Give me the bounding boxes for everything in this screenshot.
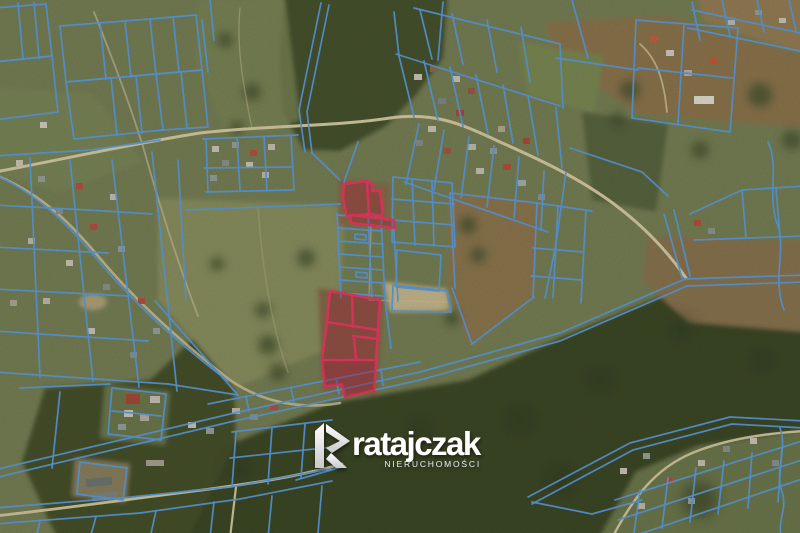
brand-tagline: NIERUCHOMOŚCI — [384, 458, 481, 469]
satellite-cadastral-map: ratajczak NIERUCHOMOŚCI — [0, 0, 800, 533]
brand-name: ratajczak — [352, 425, 482, 462]
